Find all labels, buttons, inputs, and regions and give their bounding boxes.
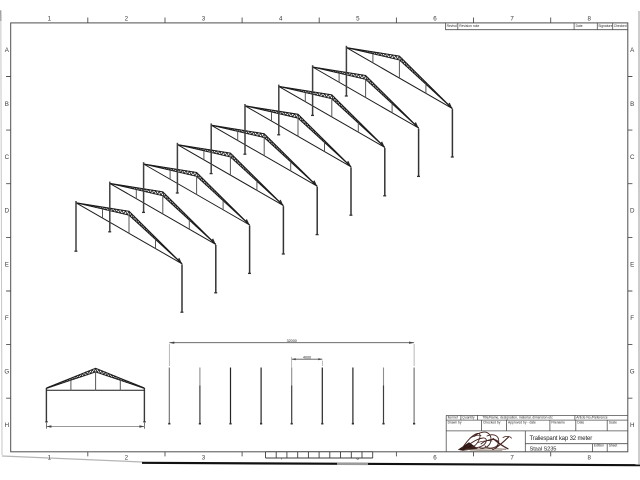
svg-text:3: 3 [202,15,206,22]
svg-text:Quantity: Quantity [462,416,475,420]
svg-text:B: B [5,101,9,108]
svg-text:Sheet: Sheet [609,444,618,448]
svg-text:Traliespant kap 32 meter: Traliespant kap 32 meter [530,436,593,442]
svg-text:D: D [5,208,10,215]
svg-text:8: 8 [587,15,591,22]
svg-text:C: C [5,154,10,161]
svg-text:H: H [630,422,634,429]
svg-text:Itemref: Itemref [448,416,458,420]
svg-text:Checked: Checked [614,24,627,28]
svg-text:H: H [5,422,9,429]
svg-text:1: 1 [48,15,52,22]
svg-text:6: 6 [433,15,437,22]
svg-text:Revision note: Revision note [459,24,479,28]
svg-text:G: G [630,369,635,376]
svg-text:Scale: Scale [609,421,617,425]
svg-text:2: 2 [125,454,129,461]
svg-text:Date: Date [577,421,584,425]
svg-text:Filename: Filename [551,421,565,425]
svg-text:3: 3 [202,454,206,461]
svg-text:8: 8 [587,454,591,461]
svg-text:Date: Date [576,24,583,28]
svg-text:B: B [630,101,634,108]
svg-text:7: 7 [510,15,514,22]
svg-text:32000: 32000 [287,339,297,343]
svg-text:1: 1 [48,454,52,461]
svg-text:Article No./Reference: Article No./Reference [576,416,607,420]
svg-text:Checked by: Checked by [483,421,501,425]
svg-text:E: E [630,261,634,268]
svg-text:D: D [630,208,635,215]
svg-text:Title/Name, designation, mater: Title/Name, designation, material, dimen… [483,416,554,420]
svg-text:E: E [5,261,9,268]
svg-text:4000: 4000 [303,355,311,359]
svg-text:Drawn by: Drawn by [448,421,462,425]
svg-text:2: 2 [125,15,129,22]
svg-text:7: 7 [510,454,514,461]
svg-text:Signature: Signature [598,24,612,28]
svg-text:Revisd: Revisd [447,24,457,28]
svg-text:Approved by - date: Approved by - date [508,421,536,425]
svg-text:6: 6 [433,454,437,461]
svg-text:Staal S235: Staal S235 [530,446,557,452]
svg-text:F: F [630,315,634,322]
svg-text:G: G [4,369,9,376]
svg-text:4: 4 [279,15,283,22]
svg-text:C: C [630,154,635,161]
svg-text:F: F [5,315,9,322]
svg-text:5: 5 [356,15,360,22]
svg-text:Edition: Edition [594,444,604,448]
